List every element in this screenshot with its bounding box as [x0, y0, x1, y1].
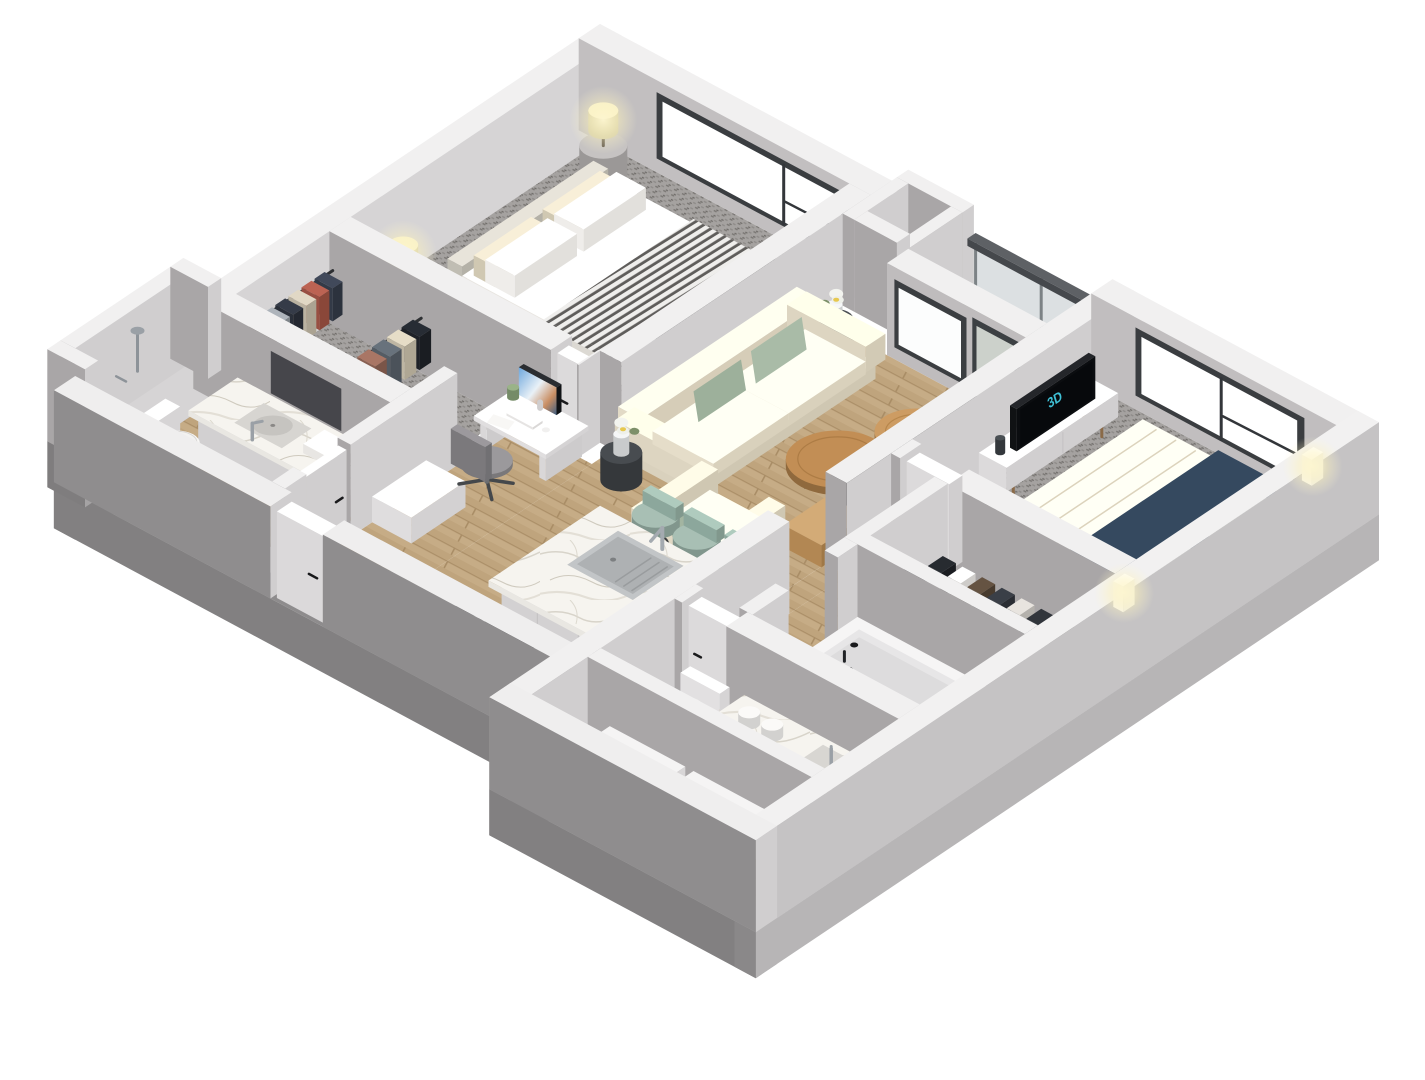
shower-niche-wall: [208, 278, 221, 379]
console-vase: [995, 435, 1005, 441]
floorplan-3d-render: 3D: [0, 0, 1425, 1080]
sink-drain: [610, 558, 616, 562]
chair-back: [485, 443, 492, 482]
towel-roll: [738, 706, 760, 718]
shaft-wall: [843, 214, 855, 312]
bed2-tv: [1010, 406, 1017, 452]
bed2-door: [949, 476, 962, 571]
hanging-clothes: [320, 291, 330, 331]
tub-faucet: [850, 643, 858, 648]
wall-sw-laundry: [756, 826, 777, 932]
towel-roll: [761, 719, 783, 731]
floorplan-page: 3D: [0, 0, 1425, 1080]
flower-leaves: [629, 428, 639, 435]
sconce-glow: [1094, 563, 1154, 623]
sink-drain: [270, 424, 275, 427]
shower-head: [131, 327, 145, 335]
flower-yellow: [620, 427, 626, 431]
faucet-spout: [252, 421, 262, 423]
hanging-clothes: [333, 282, 343, 322]
lamp-glow: [569, 86, 637, 154]
sconce-glow: [1283, 436, 1343, 496]
desk-plant: [507, 384, 519, 391]
desk-mouse: [542, 427, 550, 432]
lily-flowers: [614, 418, 628, 428]
flower-yellow: [833, 298, 839, 302]
desk-monitor: [557, 384, 562, 415]
